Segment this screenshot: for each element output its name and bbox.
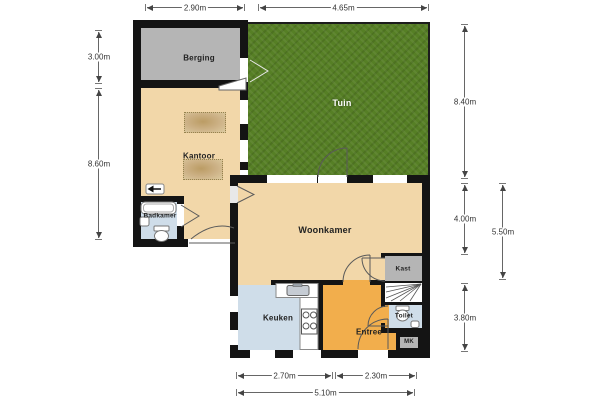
window-keuken-left-1 bbox=[230, 296, 238, 312]
room-badkamer bbox=[141, 202, 177, 239]
door-opening-berging-tuin bbox=[240, 58, 248, 82]
dimension-keuken-row-height: 3.80m bbox=[464, 285, 465, 350]
door-opening-kantoor-garden-side bbox=[188, 239, 235, 247]
door-opening-woonkamer-tuin bbox=[318, 175, 347, 183]
rug-kantoor-1 bbox=[184, 112, 226, 133]
door-opening-kantoor-woonkamer bbox=[230, 186, 238, 203]
dimension-berging-height: 3.00m bbox=[98, 32, 99, 82]
window-kantoor-2 bbox=[240, 140, 248, 162]
label-woonkamer: Woonkamer bbox=[298, 225, 351, 235]
dimension-berging-width: 2.90m bbox=[147, 7, 243, 8]
window-woonkamer-tuin-2 bbox=[373, 175, 407, 183]
window-woonkamer-tuin-1 bbox=[267, 175, 317, 183]
label-mk: MK bbox=[404, 339, 414, 345]
label-berging: Berging bbox=[183, 54, 215, 63]
label-tuin: Tuin bbox=[332, 98, 351, 108]
dimension-rear-section-height: 5.50m bbox=[502, 185, 503, 278]
window-kantoor-1 bbox=[240, 100, 248, 124]
window-keuken-left-2 bbox=[230, 330, 238, 345]
dimension-entree-width: 2.30m bbox=[337, 375, 415, 376]
label-keuken: Keuken bbox=[263, 314, 293, 323]
door-opening-badkamer bbox=[177, 204, 184, 226]
floor-plan: Berging Kantoor Badkamer Tuin Woonkamer … bbox=[0, 0, 600, 400]
dimension-keuken-width: 2.70m bbox=[238, 375, 331, 376]
label-entree: Entree bbox=[356, 328, 382, 337]
door-opening-woonkamer-entree bbox=[343, 280, 370, 285]
staircase bbox=[385, 283, 422, 302]
dimension-kantoor-section-height: 8.60m bbox=[98, 90, 99, 238]
dimension-total-width: 5.10m bbox=[238, 392, 413, 393]
window-keuken-bottom-1 bbox=[250, 350, 275, 358]
label-badkamer: Badkamer bbox=[143, 213, 176, 220]
label-toilet: Toilet bbox=[395, 313, 413, 320]
label-kantoor: Kantoor bbox=[183, 152, 215, 161]
rug-kantoor-2 bbox=[183, 159, 223, 180]
window-keuken-bottom-2 bbox=[293, 350, 321, 358]
dimension-woonkamer-depth: 4.00m bbox=[464, 185, 465, 253]
label-kast: Kast bbox=[396, 266, 411, 273]
dimension-tuin-height: 8.40m bbox=[464, 26, 465, 177]
front-door-opening bbox=[358, 350, 388, 358]
door-opening-kast bbox=[381, 258, 385, 280]
wall-keuken-woonkamer bbox=[271, 280, 323, 285]
dimension-tuin-width: 4.65m bbox=[260, 7, 427, 8]
door-opening-toilet bbox=[381, 307, 389, 323]
